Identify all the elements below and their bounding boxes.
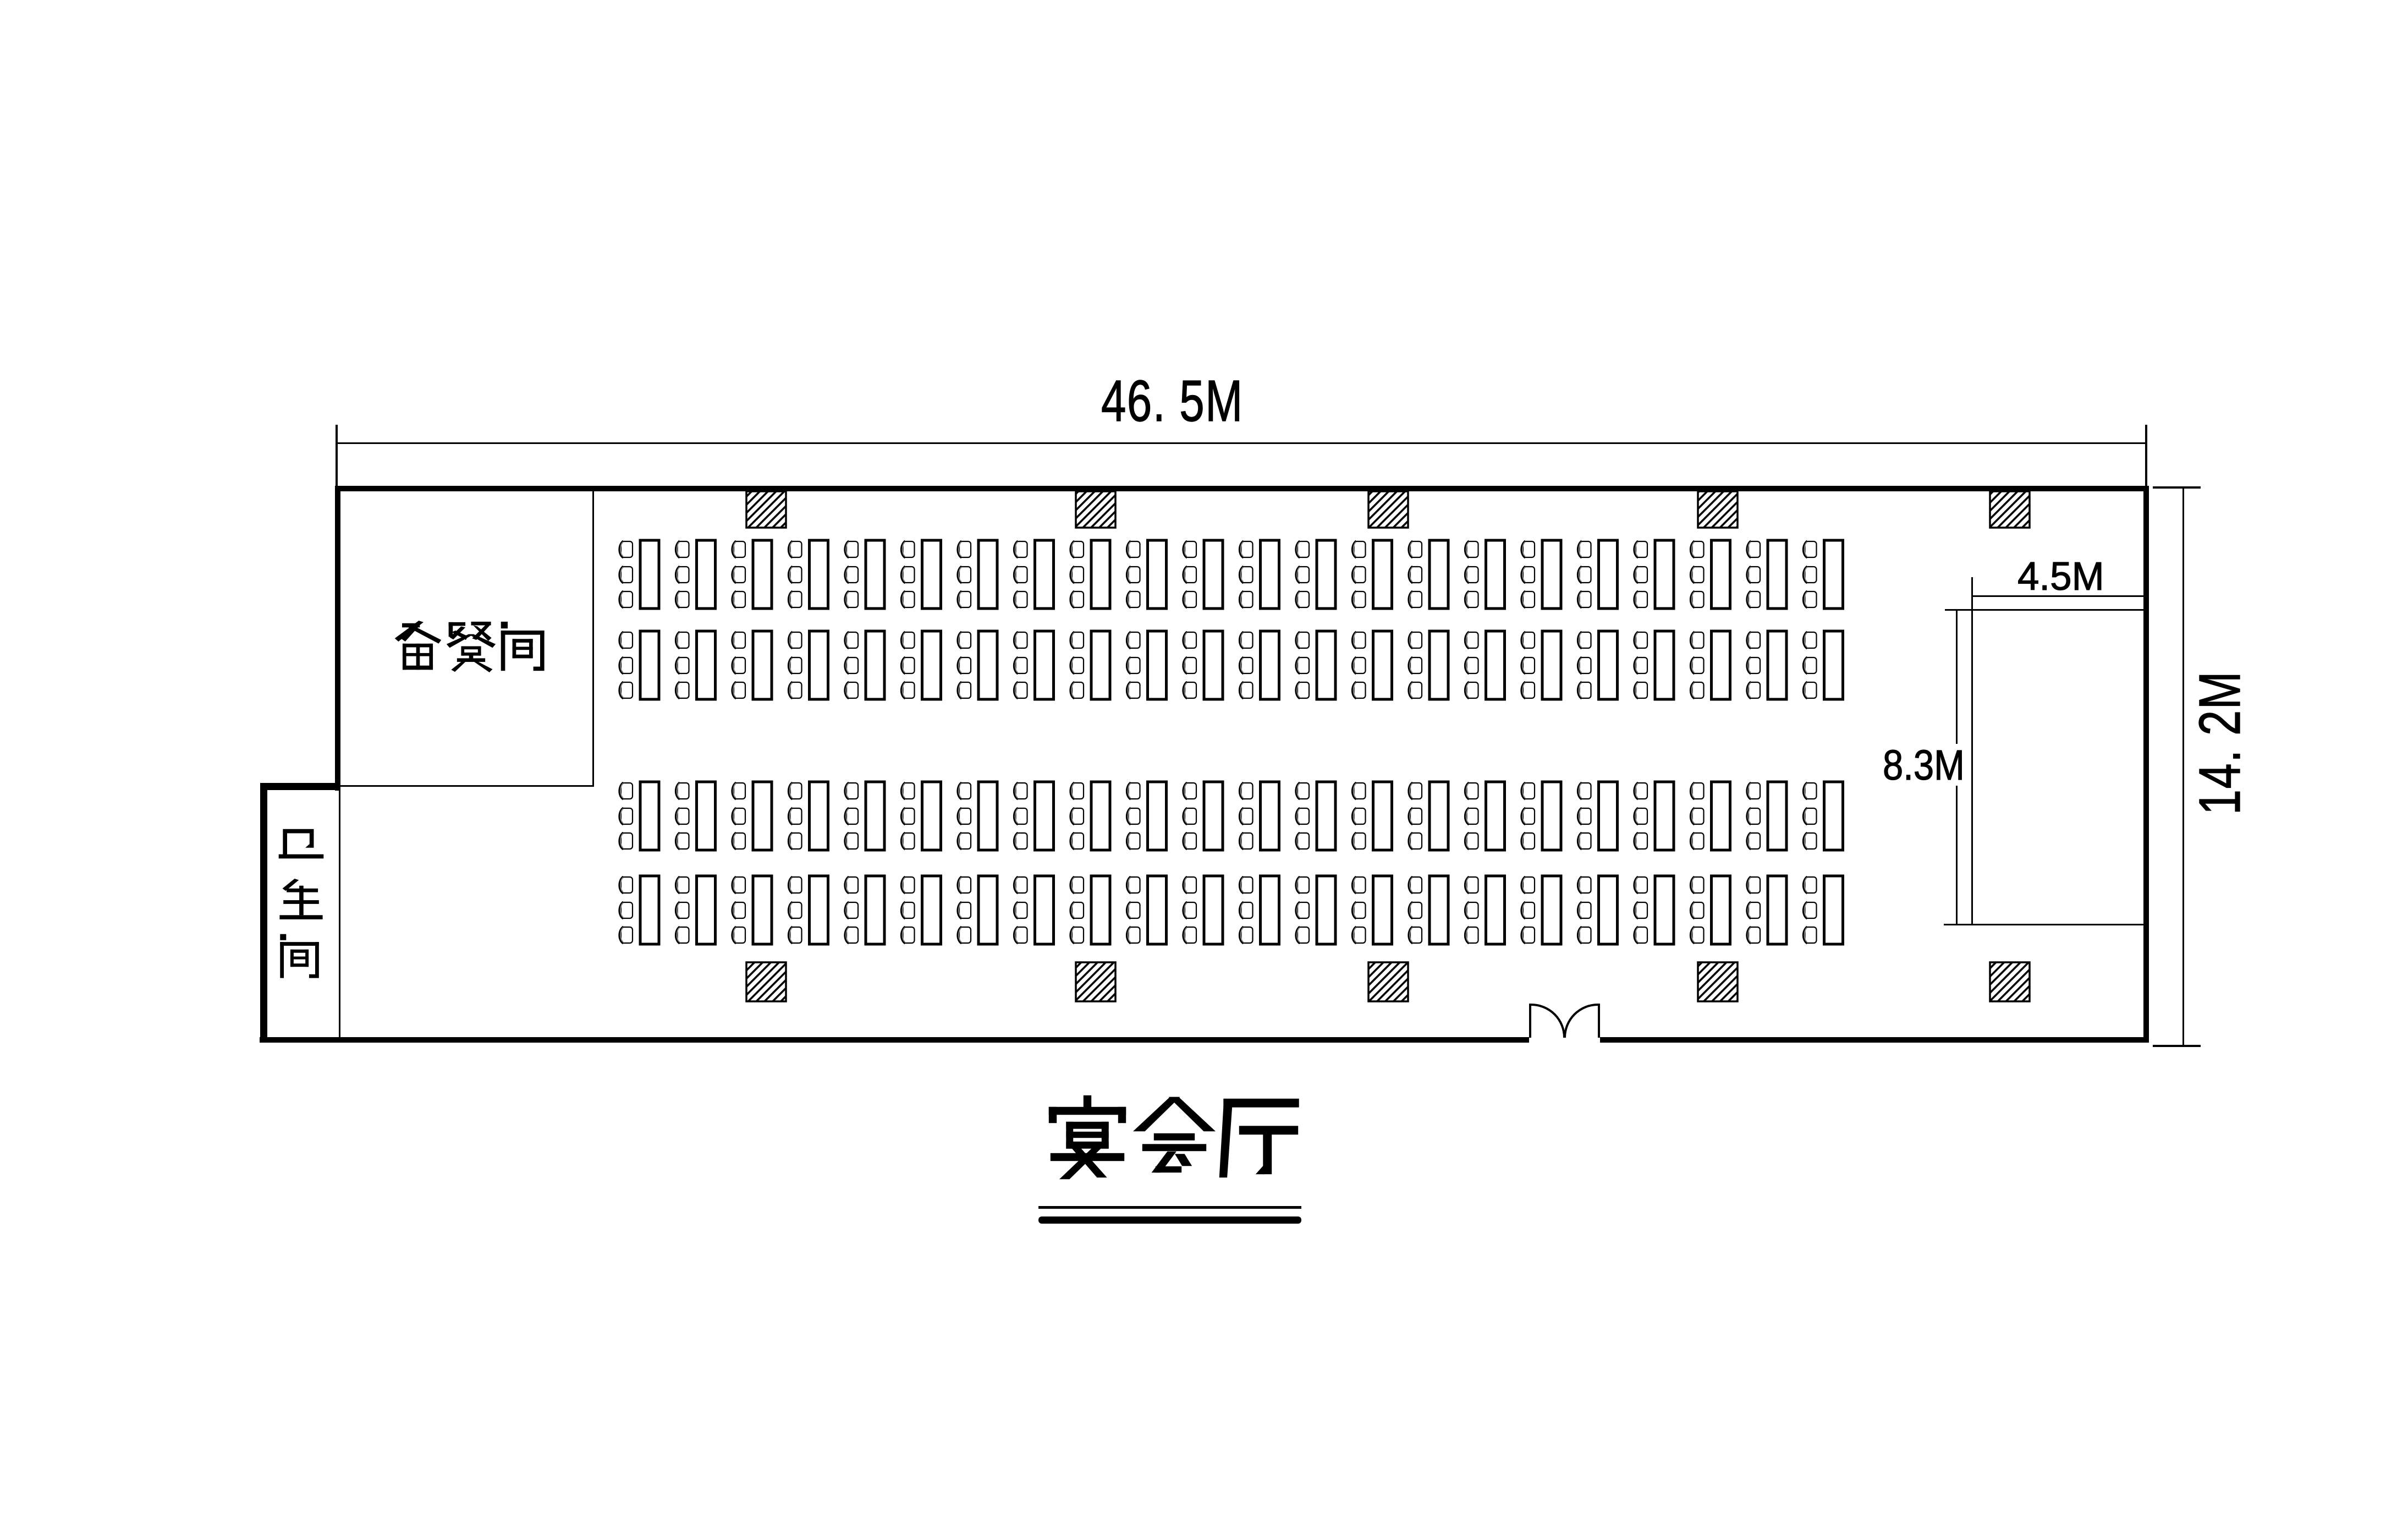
svg-text:46. 5M: 46. 5M (1101, 369, 1244, 434)
svg-text:4.5M: 4.5M (2017, 555, 2104, 599)
svg-text:14. 2M: 14. 2M (2187, 671, 2252, 815)
svg-text:8.3M: 8.3M (1883, 742, 1965, 789)
